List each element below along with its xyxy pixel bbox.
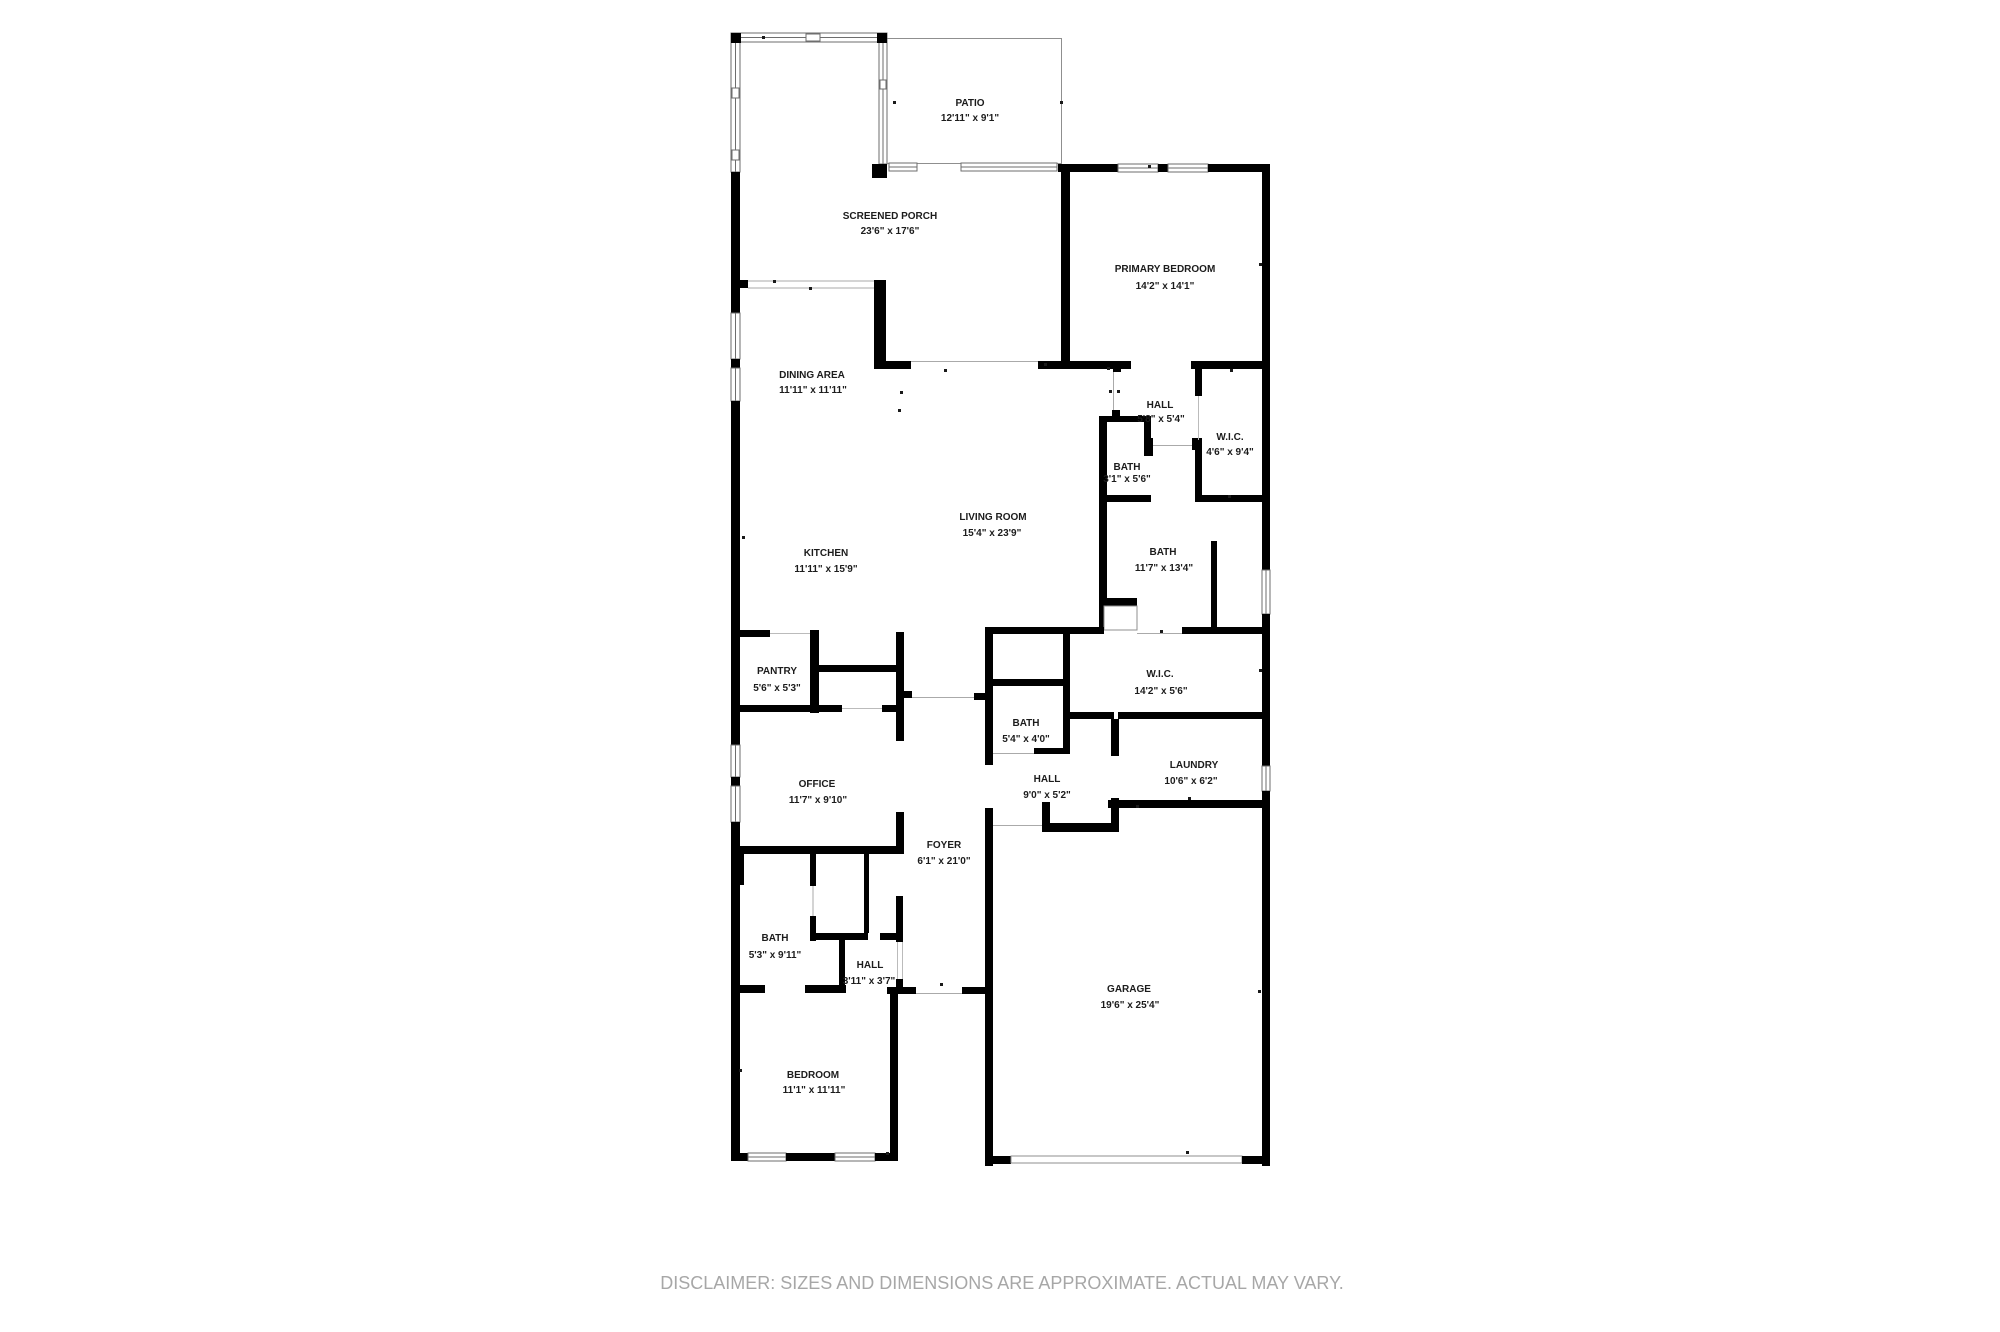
svg-text:BATH: BATH bbox=[1012, 718, 1039, 729]
svg-text:BATH: BATH bbox=[761, 933, 788, 944]
svg-text:SCREENED PORCH: SCREENED PORCH bbox=[843, 211, 937, 222]
svg-text:3'11" x 3'7": 3'11" x 3'7" bbox=[843, 976, 896, 987]
svg-text:W.I.C.: W.I.C. bbox=[1146, 669, 1173, 680]
svg-text:BATH: BATH bbox=[1149, 547, 1176, 558]
svg-text:HALL: HALL bbox=[1034, 774, 1061, 785]
svg-text:11'7" x 13'4": 11'7" x 13'4" bbox=[1135, 563, 1193, 574]
svg-text:LAUNDRY: LAUNDRY bbox=[1170, 760, 1219, 771]
svg-text:10'6" x 6'2": 10'6" x 6'2" bbox=[1164, 776, 1217, 787]
svg-text:HALL: HALL bbox=[857, 960, 884, 971]
svg-text:11'11" x 15'9": 11'11" x 15'9" bbox=[794, 564, 857, 575]
svg-text:14'2" x 14'1": 14'2" x 14'1" bbox=[1136, 281, 1195, 292]
svg-text:6'1" x 21'0": 6'1" x 21'0" bbox=[917, 856, 970, 867]
svg-text:5'3" x 9'11": 5'3" x 9'11" bbox=[749, 950, 802, 961]
svg-text:3'1" x 5'6": 3'1" x 5'6" bbox=[1103, 474, 1151, 485]
svg-text:5'6" x 5'3": 5'6" x 5'3" bbox=[753, 683, 801, 694]
svg-text:GARAGE: GARAGE bbox=[1107, 984, 1151, 995]
svg-text:11'7" x 9'10": 11'7" x 9'10" bbox=[789, 795, 847, 806]
svg-text:9'0" x 5'2": 9'0" x 5'2" bbox=[1023, 790, 1071, 801]
svg-text:BATH: BATH bbox=[1113, 462, 1140, 473]
svg-text:5'8" x 5'4": 5'8" x 5'4" bbox=[1137, 414, 1185, 425]
svg-text:PATIO: PATIO bbox=[955, 98, 984, 109]
svg-text:LIVING ROOM: LIVING ROOM bbox=[959, 512, 1026, 523]
svg-text:DISCLAIMER: SIZES AND DIMENSIO: DISCLAIMER: SIZES AND DIMENSIONS ARE APP… bbox=[660, 1273, 1344, 1293]
svg-text:HALL: HALL bbox=[1147, 400, 1174, 411]
svg-text:11'11" x 11'11": 11'11" x 11'11" bbox=[779, 385, 847, 396]
svg-text:11'1" x 11'11": 11'1" x 11'11" bbox=[783, 1085, 846, 1096]
svg-text:PRIMARY BEDROOM: PRIMARY BEDROOM bbox=[1115, 264, 1216, 275]
svg-text:W.I.C.: W.I.C. bbox=[1216, 432, 1243, 443]
svg-text:19'6" x 25'4": 19'6" x 25'4" bbox=[1101, 1000, 1160, 1011]
svg-text:BEDROOM: BEDROOM bbox=[787, 1070, 839, 1081]
svg-text:12'11" x 9'1": 12'11" x 9'1" bbox=[941, 113, 999, 124]
svg-text:FOYER: FOYER bbox=[927, 840, 962, 851]
svg-text:15'4" x 23'9": 15'4" x 23'9" bbox=[963, 528, 1022, 539]
svg-text:5'4" x 4'0": 5'4" x 4'0" bbox=[1002, 734, 1050, 745]
svg-text:23'6" x 17'6": 23'6" x 17'6" bbox=[861, 226, 920, 237]
svg-text:4'6" x 9'4": 4'6" x 9'4" bbox=[1206, 447, 1254, 458]
svg-text:KITCHEN: KITCHEN bbox=[804, 548, 848, 559]
svg-text:OFFICE: OFFICE bbox=[799, 779, 836, 790]
svg-text:PANTRY: PANTRY bbox=[757, 666, 797, 677]
svg-text:14'2" x 5'6": 14'2" x 5'6" bbox=[1134, 686, 1187, 697]
svg-text:DINING AREA: DINING AREA bbox=[779, 370, 845, 381]
